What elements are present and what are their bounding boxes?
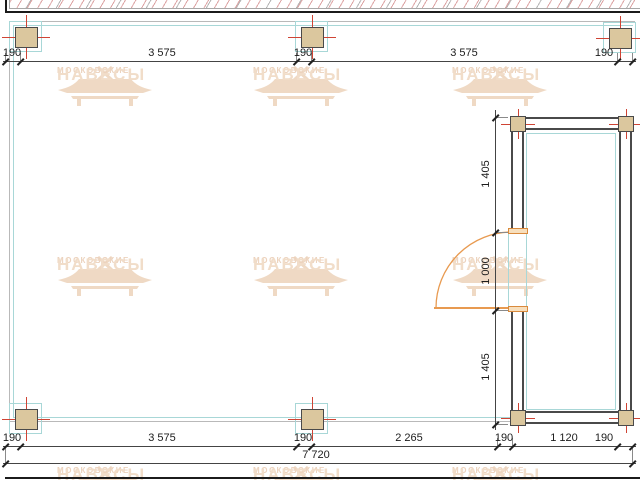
canopy-outline-left-cyan [13,25,14,418]
dim-label-bottom: 3 575 [148,432,176,444]
watermark-line2: НАВЕСЫ [57,256,146,274]
dim-label-bottom: 1 120 [550,432,578,444]
watermark-line2: НАВЕСЫ [57,66,146,84]
column-post [618,410,634,426]
dim-label-bottom: 190 [294,432,312,444]
column-post [609,28,632,49]
watermark-logo: МОСКОВСКИЕНАВЕСЫ [253,66,349,130]
dim-label-top: 190 [294,47,312,59]
watermark-logo: МОСКОВСКИЕНАВЕСЫ [57,66,153,130]
door-jamb-top [508,228,528,234]
dim-line-total [3,463,636,464]
column-post [301,409,324,430]
floor-plan-canvas: 1903 5751903 5751901903 5751902 2651901 … [0,0,640,480]
dim-label-top: 190 [3,47,21,59]
extension-stub [497,310,508,311]
column-post [15,27,38,48]
dim-label-total: 7 720 [302,449,330,461]
dim-label-bottom: 2 265 [395,432,423,444]
watermark-logo: МОСКОВСКИЕНАВЕСЫ [57,256,153,320]
door-jamb-bottom [508,306,528,312]
dim-label-bottom: 190 [3,432,21,444]
column-post [15,409,38,430]
dim-label-bottom: 190 [495,432,513,444]
column-post [301,27,324,48]
watermark-line2: НАВЕСЫ [253,256,342,274]
dim-label-top: 3 575 [450,47,478,59]
watermark-line2: НАВЕСЫ [253,66,342,84]
column-post [510,116,526,132]
structure-inner-cyan-rect [526,133,616,410]
column-post [510,410,526,426]
hatched-wall-strip [5,0,640,13]
dim-line-vertical [495,110,496,430]
wall-right [619,117,632,424]
dim-line-bottom [3,446,636,447]
canopy-outline-left-gray [9,21,10,422]
column-post [618,116,634,132]
dim-label-top: 3 575 [148,47,176,59]
dim-label-vertical: 1 405 [480,353,492,381]
hatch-pattern [9,0,640,9]
canopy-outline-bottom-gray [9,421,513,422]
dim-label-bottom: 190 [595,432,613,444]
extension-stub [497,424,508,425]
dim-label-vertical: 1 000 [480,257,492,285]
watermark-line2: НАВЕСЫ [452,66,541,84]
dim-label-top: 190 [595,47,613,59]
extension-stub [497,117,508,118]
watermark-logo: МОСКОВСКИЕНАВЕСЫ [253,256,349,320]
dim-line-top [3,61,636,62]
dim-label-vertical: 1 405 [480,160,492,188]
bottom-border-line [5,477,640,479]
extension-stub [497,232,508,233]
canopy-outline-bottom-cyan [13,417,513,418]
